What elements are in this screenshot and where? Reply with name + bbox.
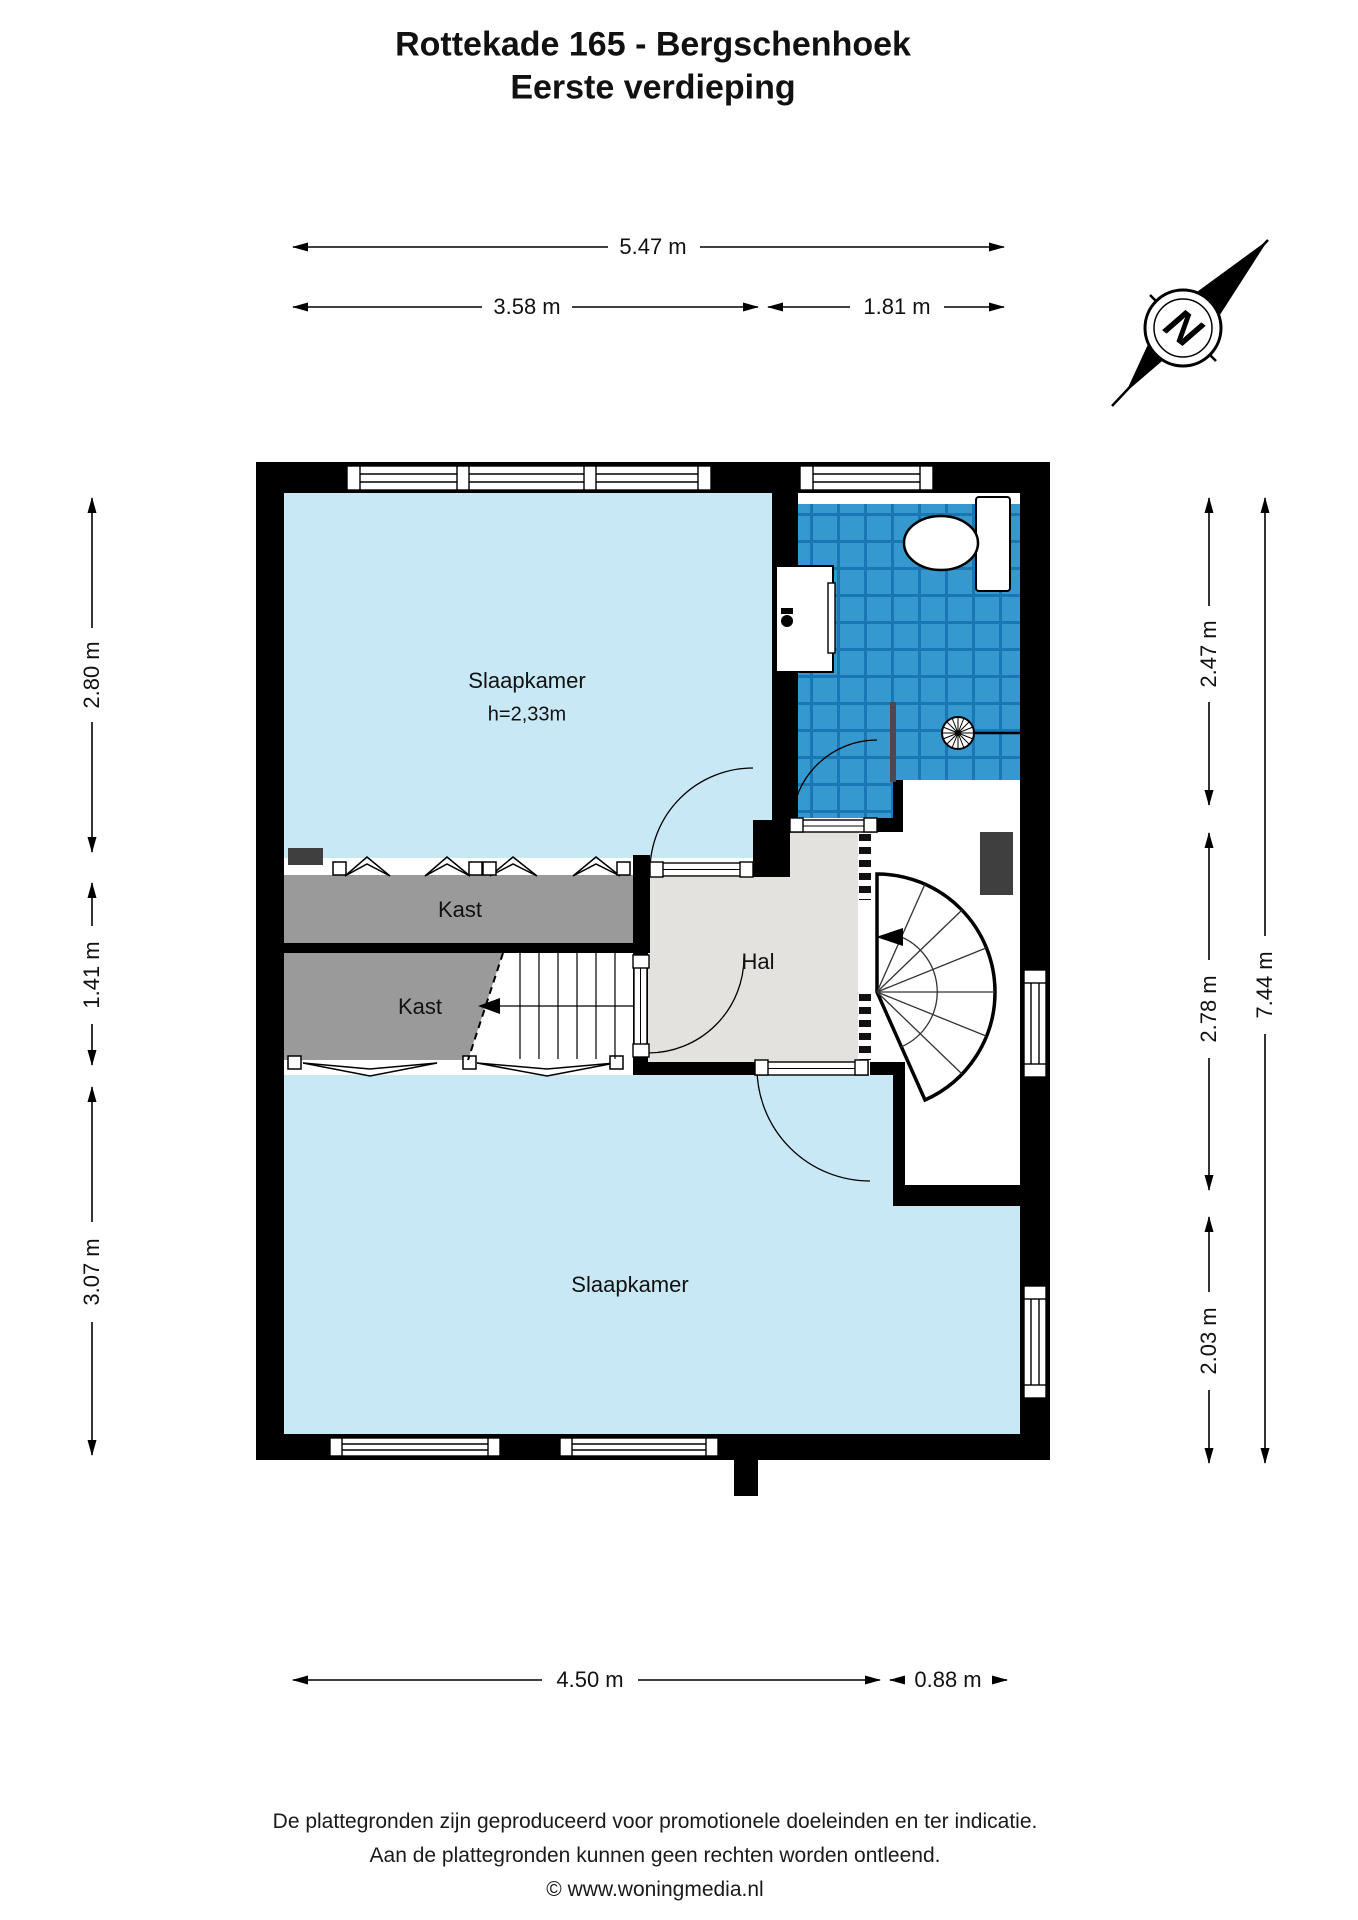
dim-left-middle: 1.41 m <box>79 941 105 1008</box>
dim-top-left: 3.58 m <box>493 294 560 320</box>
compass-icon: N <box>1112 240 1268 406</box>
dim-right-lower: 2.03 m <box>1196 1307 1222 1374</box>
hall-floor-notch <box>790 832 858 877</box>
closet2-floor <box>284 953 503 1060</box>
duct-left <box>288 848 323 865</box>
dim-top-right: 1.81 m <box>863 294 930 320</box>
page-subtitle: Eerste verdieping <box>510 69 795 108</box>
toilet-cistern-icon <box>976 497 1010 591</box>
dim-right-upper: 2.47 m <box>1196 620 1222 687</box>
room-label-slaapkamer2: Slaapkamer <box>571 1272 688 1298</box>
wall-closet-east <box>633 855 650 953</box>
dim-left-upper: 2.80 m <box>79 641 105 708</box>
footer-disclaimer-line1: De plattegronden zijn geproduceerd voor … <box>273 1810 1038 1834</box>
dim-top-total: 5.47 m <box>619 234 686 260</box>
room-label-kast2: Kast <box>398 994 442 1020</box>
bedroom2-floor-east <box>893 1206 1020 1434</box>
wall-bath-door-pier <box>877 818 893 832</box>
wall-stairzone-south <box>893 1185 1050 1206</box>
toilet-icon <box>904 516 978 570</box>
window-top-bedroom1 <box>347 466 711 490</box>
bedroom2-floor <box>284 1075 893 1434</box>
room-label-hal: Hal <box>741 949 774 975</box>
page-title: Rottekade 165 - Bergschenhoek <box>395 26 911 65</box>
wall-bottom-stub <box>734 1460 758 1496</box>
room-label-slaapkamer1: Slaapkamer <box>468 668 585 694</box>
footer-disclaimer-line2: Aan de plattegronden kunnen geen rechten… <box>370 1844 941 1868</box>
window-bottom-right <box>560 1438 718 1456</box>
dim-right-total: 7.44 m <box>1252 951 1278 1018</box>
dim-bottom-right: 0.88 m <box>914 1667 981 1693</box>
dim-left-lower: 3.07 m <box>79 1238 105 1305</box>
wall-stairzone-west <box>893 1062 905 1192</box>
window-top-bathroom <box>800 466 933 490</box>
wall-between-closets <box>282 943 648 953</box>
wall-left <box>256 462 284 1460</box>
window-right-stairzone <box>1024 970 1046 1077</box>
wall-hall-south-pier <box>870 1062 893 1075</box>
sink-icon <box>776 566 835 672</box>
room-label-slaapkamer1-height: h=2,33m <box>488 704 566 727</box>
window-bottom-left <box>330 1438 500 1456</box>
floorplan-page: N Rottekade 165 - Bergschenhoek Eerste v… <box>0 0 1358 1920</box>
wall-shower-support <box>893 780 903 832</box>
duct-right <box>980 832 1013 895</box>
footer-copyright: © www.woningmedia.nl <box>546 1878 763 1902</box>
dim-bottom-left: 4.50 m <box>556 1667 623 1693</box>
window-right-bedroom2 <box>1024 1286 1046 1398</box>
wall-hall-corner <box>753 820 790 877</box>
wall-hall-south-left <box>633 1062 755 1075</box>
dim-right-middle: 2.78 m <box>1196 975 1222 1042</box>
floorplan-drawing: N <box>0 0 1358 1920</box>
room-label-kast1: Kast <box>438 897 482 923</box>
